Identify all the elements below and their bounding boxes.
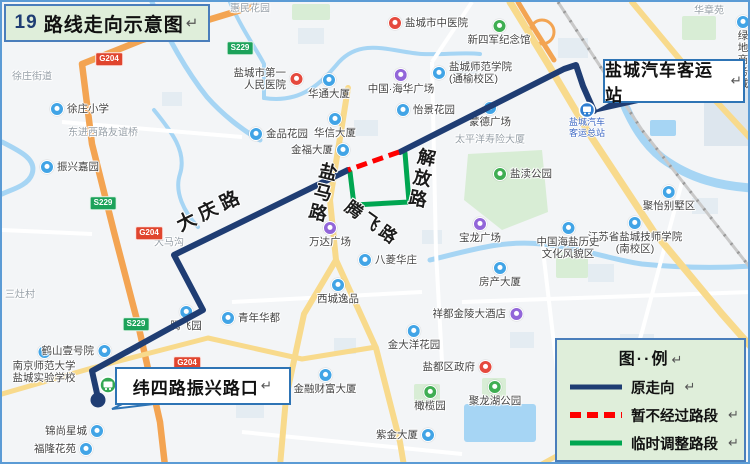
legend-row-original: 原走向 ↵ bbox=[569, 373, 734, 401]
return-mark: ↵ bbox=[186, 14, 200, 32]
title-route-number: 19 bbox=[15, 12, 38, 34]
return-mark: ↵ bbox=[685, 379, 696, 395]
legend-original-line-sample bbox=[569, 383, 623, 391]
legend-temp-label: 临时调整路段 bbox=[631, 433, 718, 454]
return-mark: ↵ bbox=[731, 73, 743, 89]
road-shield-badge: S229 bbox=[123, 317, 150, 331]
legend-box: 图··例↵ 原走向 ↵ 暂不经过路段 ↵ 临时调整路段 ↵ bbox=[555, 338, 746, 462]
terminal-callout-label: 盐城汽车客运站 bbox=[605, 56, 729, 106]
terminal-callout: 盐城汽车客运站 ↵ bbox=[603, 59, 745, 103]
road-shield-badge: G204 bbox=[135, 226, 163, 240]
road-shield-badge: S229 bbox=[90, 196, 117, 210]
road-shield-badge: S229 bbox=[227, 41, 254, 55]
map-canvas[interactable]: 徐庄街道惠民花园华章苑大马沟三灶村东进西路友谊桥太平洋寿险大厦盐城市中医院新四军… bbox=[0, 0, 750, 464]
title-box: 19 路线走向示意图 ↵ bbox=[4, 4, 210, 42]
road-shield-badge: G204 bbox=[95, 52, 123, 66]
weisi-callout: 纬四路振兴路口 ↵ bbox=[115, 367, 291, 405]
legend-row-closed: 暂不经过路段 ↵ bbox=[569, 401, 734, 429]
return-mark: ↵ bbox=[728, 435, 739, 451]
weisi-callout-label: 纬四路振兴路口 bbox=[133, 374, 259, 399]
page-title: 路线走向示意图 bbox=[44, 10, 184, 37]
legend-closed-label: 暂不经过路段 bbox=[631, 405, 718, 426]
legend-row-temp: 临时调整路段 ↵ bbox=[569, 429, 734, 457]
legend-title: 图··例↵ bbox=[569, 345, 734, 369]
return-mark: ↵ bbox=[728, 407, 739, 423]
return-mark: ↵ bbox=[261, 378, 273, 394]
legend-temp-line-sample bbox=[569, 439, 623, 447]
legend-closed-line-sample bbox=[569, 411, 623, 419]
legend-original-label: 原走向 bbox=[631, 377, 675, 398]
